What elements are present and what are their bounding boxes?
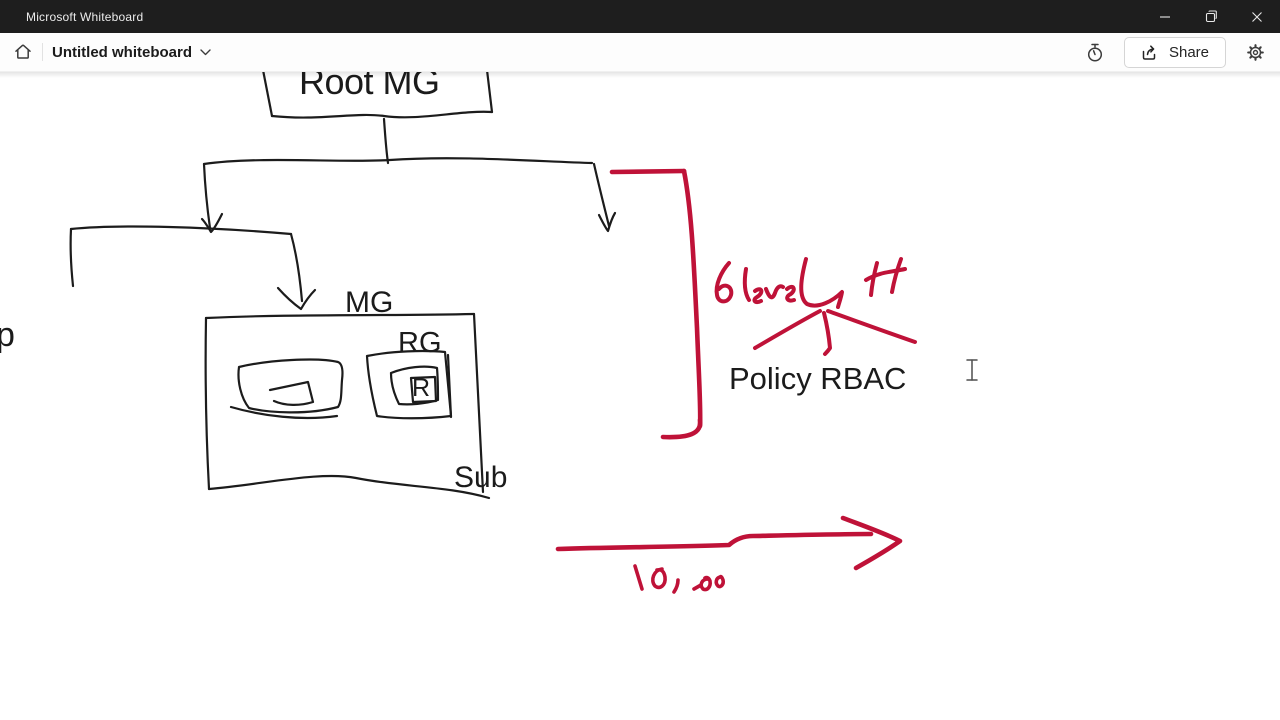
handwriting-6-level-h[interactable] — [717, 259, 905, 307]
close-icon — [1251, 11, 1263, 23]
label-clipped-left[interactable]: p — [0, 318, 15, 352]
share-button[interactable]: Share — [1124, 37, 1226, 68]
home-icon — [13, 42, 33, 62]
restore-icon — [1205, 10, 1218, 23]
board-title-menu[interactable]: Untitled whiteboard — [52, 44, 211, 61]
resource-group-shape-sketch[interactable] — [367, 351, 451, 418]
restore-button[interactable] — [1188, 0, 1234, 33]
ink-layer[interactable] — [0, 0, 1280, 720]
hierarchy-connector-lines[interactable] — [71, 119, 592, 309]
red-arrow-sketch[interactable] — [558, 518, 900, 568]
handwriting-red-numbers[interactable] — [635, 566, 723, 592]
share-icon — [1141, 44, 1160, 61]
red-fan-rays[interactable] — [755, 311, 915, 354]
timer-button[interactable] — [1080, 38, 1110, 68]
window-titlebar: Microsoft Whiteboard — [0, 0, 1280, 33]
whiteboard-canvas[interactable]: Root MG MG RG R Sub Policy RBAC p — [0, 0, 1280, 720]
label-rg[interactable]: RG — [398, 329, 442, 358]
settings-button[interactable] — [1240, 38, 1270, 68]
text-cursor-ibeam — [967, 360, 977, 380]
window-title: Microsoft Whiteboard — [26, 10, 143, 24]
board-title: Untitled whiteboard — [52, 44, 192, 61]
minimize-icon — [1159, 11, 1171, 23]
resource-shape-left-sketch[interactable] — [231, 360, 343, 418]
label-r[interactable]: R — [412, 376, 430, 401]
chevron-down-icon — [200, 49, 211, 56]
app-toolbar: Untitled whiteboard — [0, 33, 1280, 72]
timer-icon — [1085, 43, 1105, 63]
share-button-label: Share — [1169, 44, 1209, 61]
label-policy-rbac[interactable]: Policy RBAC — [729, 363, 906, 394]
home-button[interactable] — [6, 36, 40, 68]
toolbar-divider — [42, 43, 43, 61]
minimize-button[interactable] — [1142, 0, 1188, 33]
label-mg[interactable]: MG — [345, 288, 393, 318]
red-bracket-sketch[interactable] — [612, 171, 700, 437]
gear-icon — [1245, 42, 1266, 63]
window-controls — [1142, 0, 1280, 33]
close-button[interactable] — [1234, 0, 1280, 33]
label-sub[interactable]: Sub — [454, 463, 507, 493]
